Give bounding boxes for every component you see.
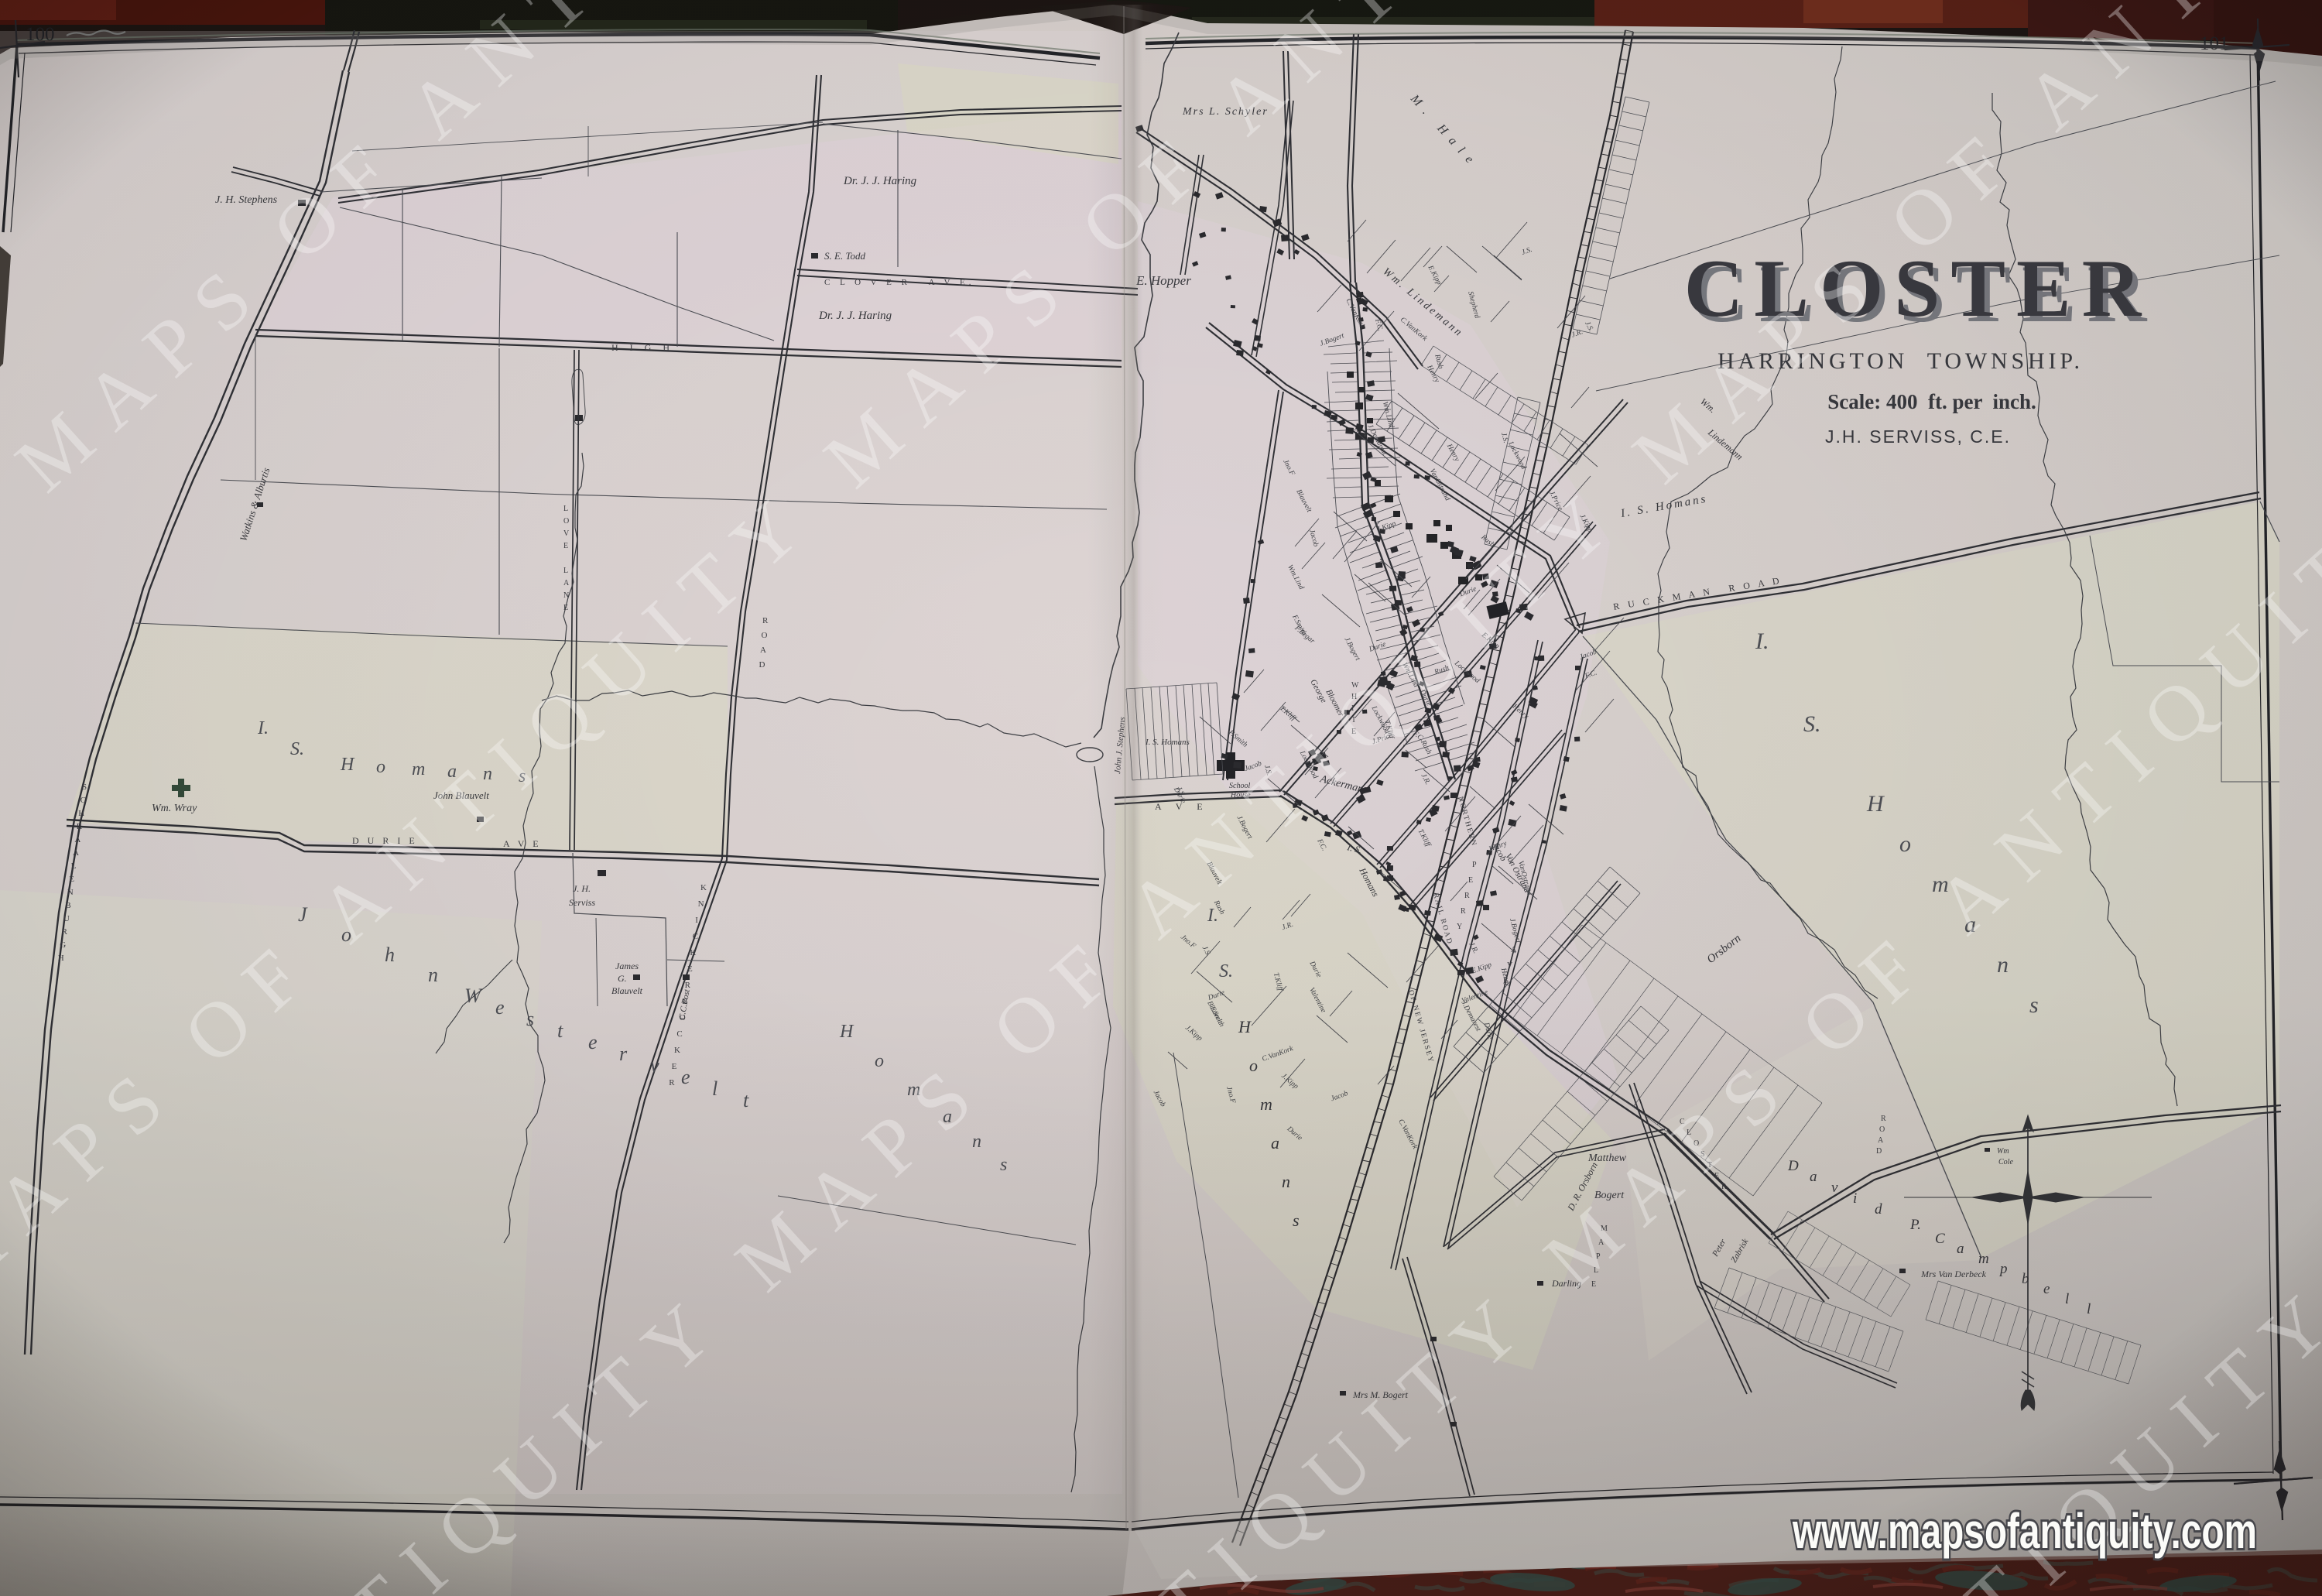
svg-text:www.mapsofantiquity.com: www.mapsofantiquity.com bbox=[1792, 1503, 2257, 1559]
